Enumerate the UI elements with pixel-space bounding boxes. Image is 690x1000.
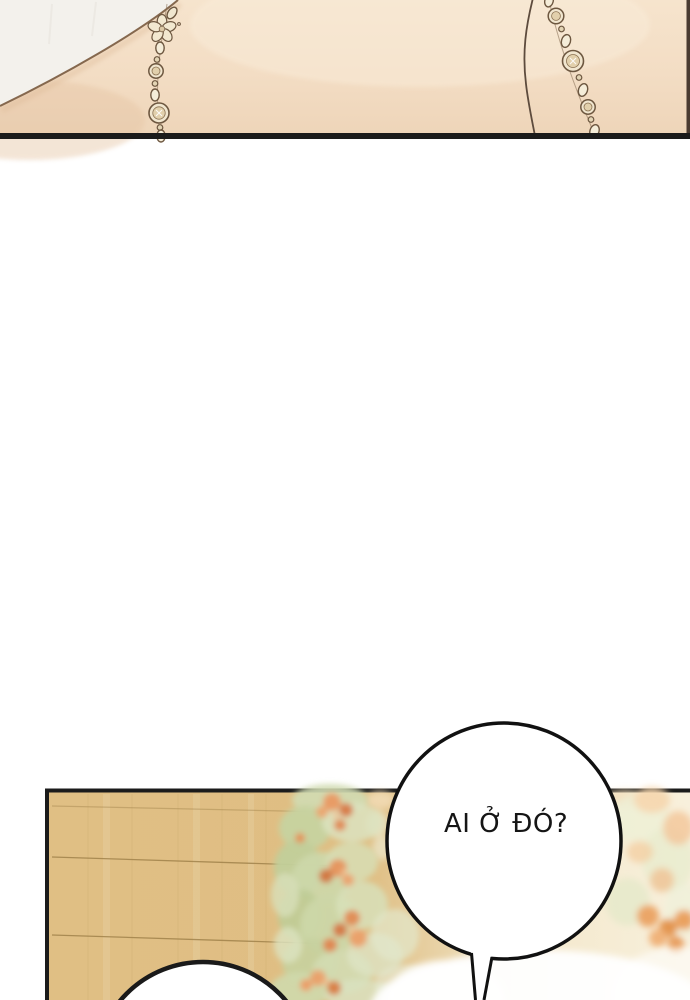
speech-bubble-body [387,723,621,959]
panel-top [0,0,690,160]
panel-bottom-border-left [45,789,49,1000]
comic-art [0,0,690,1000]
panel-top-bottom-border [0,133,690,139]
panel-right-edge-line [687,0,690,139]
speech-bubble-text: AI Ở ĐÓ? [444,807,568,841]
comic-page: AI Ở ĐÓ? [0,0,690,1000]
